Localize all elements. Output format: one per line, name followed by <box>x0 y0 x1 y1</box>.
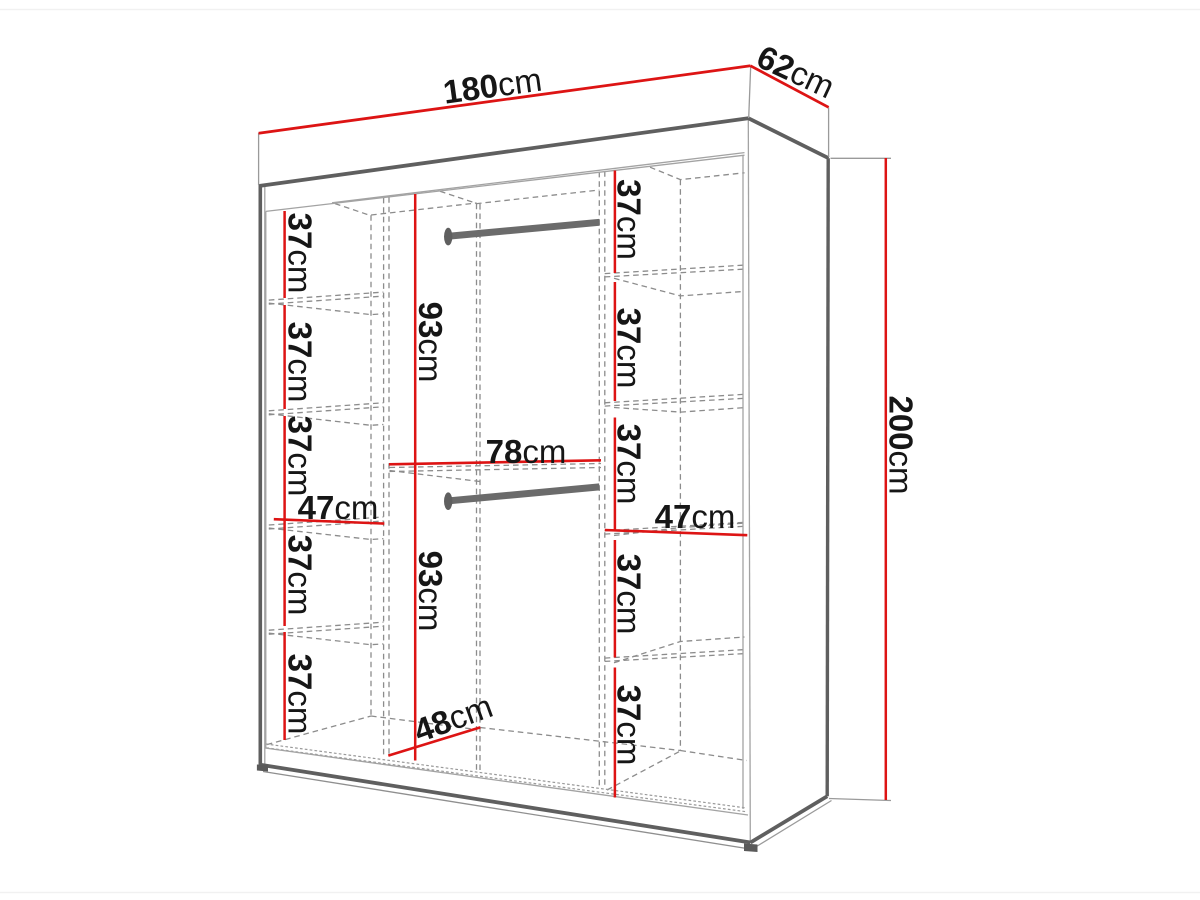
svg-text:180cm: 180cm <box>441 61 544 111</box>
svg-text:37cm: 37cm <box>282 213 319 294</box>
svg-text:37cm: 37cm <box>282 322 319 403</box>
svg-text:47cm: 47cm <box>298 489 379 526</box>
svg-text:37cm: 37cm <box>611 685 648 766</box>
svg-text:200cm: 200cm <box>883 395 920 494</box>
svg-text:93cm: 93cm <box>412 551 449 632</box>
svg-text:37cm: 37cm <box>282 416 319 497</box>
svg-text:48cm: 48cm <box>409 687 498 749</box>
svg-text:37cm: 37cm <box>611 308 648 389</box>
svg-text:37cm: 37cm <box>611 424 648 505</box>
svg-text:62cm: 62cm <box>751 38 840 106</box>
svg-text:78cm: 78cm <box>486 433 567 470</box>
svg-text:37cm: 37cm <box>282 654 319 735</box>
svg-text:37cm: 37cm <box>282 535 319 616</box>
svg-text:37cm: 37cm <box>611 179 648 260</box>
svg-text:93cm: 93cm <box>412 302 449 383</box>
svg-text:37cm: 37cm <box>611 554 648 635</box>
svg-text:47cm: 47cm <box>655 498 736 535</box>
